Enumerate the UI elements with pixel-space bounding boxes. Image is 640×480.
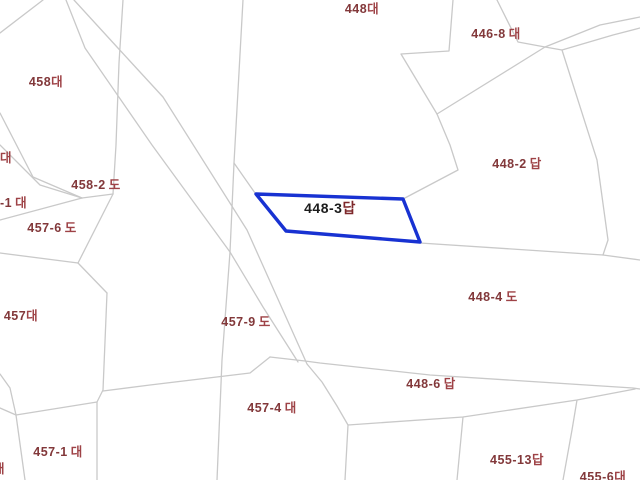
- parcel-label: 457-1 대: [33, 446, 83, 459]
- parcel-label: 448-6 답: [406, 378, 456, 391]
- parcel-category-suffix: 답: [444, 377, 456, 391]
- boundary-line-boundary-457-1-west: [16, 415, 25, 480]
- parcel-category-suffix: 답: [532, 453, 544, 467]
- parcel-category-suffix: 대: [71, 445, 83, 459]
- parcel-number: -1: [0, 196, 15, 210]
- boundary-line-boundary-455-13-east: [563, 400, 577, 480]
- highlighted-parcel-label: 448-3답: [304, 201, 356, 215]
- boundary-line-branch-to-parcel: [234, 163, 255, 193]
- parcel-category-suffix: 답: [342, 200, 355, 216]
- boundary-line-boundary-458-south-b: [0, 145, 82, 198]
- parcel-category-suffix: 대: [0, 151, 12, 165]
- boundary-line-boundary-457-6-west: [0, 253, 78, 263]
- parcel-number: 448-4: [468, 290, 505, 304]
- parcel-label: 448대: [345, 3, 379, 16]
- parcel-number: 446-8: [471, 27, 508, 41]
- parcel-label: 457-9 도: [221, 316, 271, 329]
- parcel-label: 458대: [29, 76, 63, 89]
- boundary-line-boundary-448-2-north: [437, 47, 545, 114]
- parcel-category-suffix: 도: [506, 290, 518, 304]
- parcel-category-suffix: 대: [285, 401, 297, 415]
- parcel-label: 448-2 답: [492, 158, 542, 171]
- boundary-line-boundary-457-6-upper: [78, 194, 113, 263]
- parcel-number: 457-9: [221, 315, 258, 329]
- parcel-category-suffix: 대: [0, 462, 5, 476]
- boundary-line-road-east-edge: [74, 0, 348, 480]
- parcel-number: 455-6: [580, 470, 614, 480]
- boundary-line-left-edge-to-g-b: [0, 408, 16, 415]
- boundary-line-boundary-sw-long: [103, 357, 270, 391]
- parcel-category-suffix: 대: [51, 75, 63, 89]
- parcel-label: 대: [0, 463, 5, 476]
- parcel-category-suffix: 도: [259, 315, 271, 329]
- boundary-line-boundary-448-4-north: [420, 243, 640, 260]
- parcel-number: 458-2: [71, 178, 108, 192]
- cadastral-boundaries-layer: [0, 0, 640, 480]
- boundary-line-boundary-448-6-south: [348, 389, 635, 425]
- boundary-line-connector-k-j2: [82, 194, 113, 198]
- boundary-line-boundary-455-13-west: [457, 417, 463, 480]
- parcel-number: 448-3: [304, 200, 342, 216]
- parcel-number: 457-6: [27, 221, 64, 235]
- parcel-category-suffix: 도: [109, 178, 121, 192]
- parcel-number: 457-4: [247, 401, 284, 415]
- parcel-number: 448: [345, 2, 367, 16]
- parcel-category-suffix: 도: [65, 221, 77, 235]
- map-canvas[interactable]: 448대446-8 대458대대458-2 도-1 대457-6 도448-2 …: [0, 0, 640, 480]
- boundary-line-corner-northwest: [0, 0, 43, 33]
- parcel-label: 446-8 대: [471, 28, 521, 41]
- boundary-line-boundary-448-east: [401, 0, 453, 114]
- parcel-label: 457-6 도: [27, 222, 77, 235]
- parcel-number: 457: [4, 309, 26, 323]
- parcel-category-suffix: 대: [509, 27, 521, 41]
- parcel-label: 455-13답: [490, 454, 544, 467]
- parcel-label: 455-6대: [580, 471, 627, 480]
- parcel-label: 458-2 도: [71, 179, 121, 192]
- boundary-line-path-northeast-lower: [562, 28, 640, 50]
- parcel-number: 458: [29, 75, 51, 89]
- parcel-category-suffix: 대: [26, 309, 38, 323]
- parcel-label: 448-4 도: [468, 291, 518, 304]
- boundary-line-vertical-upper-left: [113, 0, 123, 194]
- boundary-line-boundary-457-east-top: [78, 263, 107, 293]
- boundary-line-boundary-448-2-west: [403, 114, 458, 199]
- parcel-category-suffix: 대: [15, 196, 27, 210]
- boundary-line-vertical-mid-south: [217, 252, 230, 480]
- parcel-number: 457-1: [33, 445, 70, 459]
- parcel-category-suffix: 답: [530, 157, 542, 171]
- parcel-category-suffix: 대: [614, 470, 626, 480]
- parcel-number: 455-13: [490, 453, 532, 467]
- parcel-label: 457대: [4, 310, 38, 323]
- parcel-category-suffix: 대: [367, 2, 379, 16]
- parcel-label: 대: [0, 152, 12, 165]
- boundary-line-boundary-446-8-west-top: [497, 0, 562, 50]
- boundary-line-boundary-457-1-north: [16, 402, 97, 415]
- parcel-label: 457-4 대: [247, 402, 297, 415]
- boundary-line-vertical-457-east: [97, 293, 107, 480]
- parcel-label: -1 대: [0, 197, 27, 210]
- boundary-line-boundary-448-2-east: [562, 50, 608, 255]
- parcel-number: 448-2: [492, 157, 529, 171]
- parcel-number: 448-6: [406, 377, 443, 391]
